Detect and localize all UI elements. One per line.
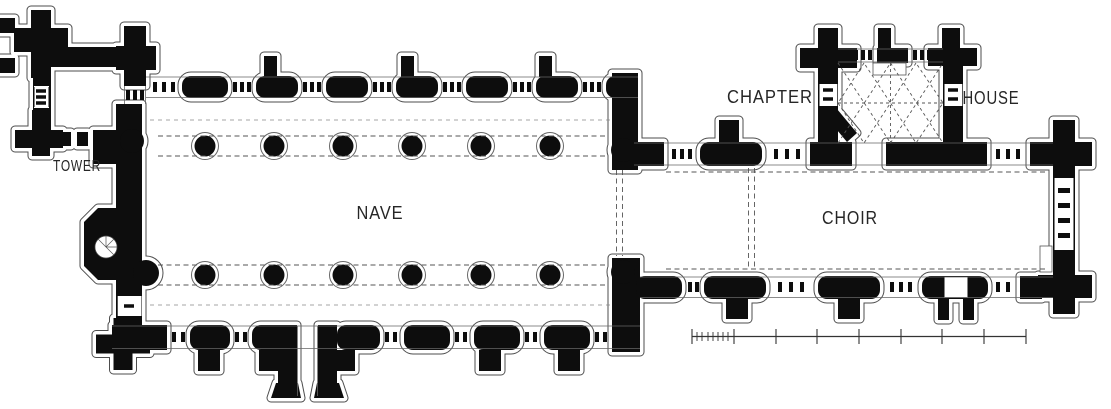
column <box>261 133 288 160</box>
church-floor-plan-page: TOWER NAVE CHOIR CHAPTER HOUSE <box>0 0 1111 409</box>
column <box>399 262 426 289</box>
priest-door <box>944 277 968 298</box>
column <box>537 262 564 289</box>
column <box>468 262 495 289</box>
column <box>330 262 357 289</box>
church-floor-plan: TOWER NAVE CHOIR CHAPTER HOUSE <box>0 0 1111 409</box>
column <box>261 262 288 289</box>
spiral-stair <box>95 236 117 258</box>
chapter-house-recess <box>873 63 906 75</box>
column <box>330 133 357 160</box>
house-label: HOUSE <box>963 88 1020 108</box>
choir-recess <box>1040 246 1052 272</box>
scale-bar <box>692 329 1026 344</box>
column <box>468 133 495 160</box>
column <box>192 133 219 160</box>
chapter-label: CHAPTER <box>727 87 813 107</box>
choir-label: CHOIR <box>822 208 878 228</box>
column <box>192 262 219 289</box>
nave-label: NAVE <box>357 203 404 223</box>
tower-label: TOWER <box>53 158 101 175</box>
column <box>537 133 564 160</box>
column <box>399 133 426 160</box>
